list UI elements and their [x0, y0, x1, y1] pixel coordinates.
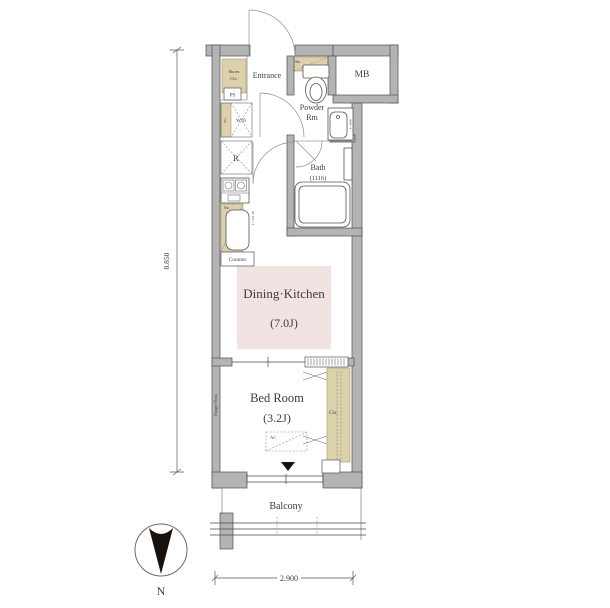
bath-shelf	[344, 148, 352, 180]
bath-size-label: (1116)	[310, 175, 327, 182]
north-compass: N	[135, 524, 187, 598]
dimension-width-label: 2.900	[280, 574, 298, 583]
floor-plan: 8.850 2.900 N Entrance Shoes Clo. PS MB …	[0, 0, 610, 608]
dining-kitchen-size-label: (7.0J)	[270, 316, 298, 330]
dining-kitchen-label: Dining·Kitchen	[243, 286, 325, 301]
balcony-railing-ticks	[277, 517, 317, 535]
wall-segment	[390, 45, 398, 103]
wall-segment	[212, 358, 232, 366]
kitchen-storage-label: Sto.	[224, 206, 230, 210]
bathtub-inner	[299, 186, 346, 223]
floor-plan-drawing: 8.850 2.900 N Entrance Shoes Clo. PS MB …	[0, 0, 610, 608]
stove-body	[221, 178, 249, 203]
wall-segment	[352, 103, 362, 488]
shoes-closet-label-1: Shoes	[229, 69, 240, 74]
wall-segment	[333, 95, 398, 103]
dining-kitchen-highlight	[237, 266, 331, 349]
wall-segment	[295, 45, 333, 56]
powder-room-label-1: Powder	[300, 103, 325, 112]
wall-segment	[212, 45, 220, 488]
entry-direction-marker	[281, 462, 295, 471]
bed-room-label: Bed Room	[250, 391, 304, 405]
hanger-hook-label: Hanger Hook	[213, 394, 218, 416]
wall-segment	[323, 472, 362, 488]
wall-step-box	[322, 460, 340, 473]
ac-label: AC	[270, 435, 276, 440]
closet-label: Clo.	[329, 411, 337, 416]
toilet-icon	[303, 65, 329, 103]
pipe-space-label: PS	[230, 94, 236, 99]
north-arrow-icon	[149, 528, 173, 574]
dimension-height-line	[170, 47, 184, 475]
bath-label: Bath	[310, 163, 325, 172]
kitchen-length-label: L=W1.50	[251, 211, 255, 225]
shoes-closet-label-2: Clo.	[230, 76, 238, 81]
main-entry-door-arc	[249, 10, 295, 56]
entrance-label: Entrance	[253, 71, 282, 80]
balcony-label: Balcony	[269, 501, 302, 512]
washer-storage-label: Sto.	[223, 117, 227, 123]
toilet-bowl-inner	[310, 84, 322, 101]
counter-label: Counter	[229, 257, 247, 263]
wall-segment	[287, 228, 362, 236]
dimension-height: 8.850	[162, 47, 184, 475]
balcony-post	[220, 513, 233, 549]
powder-room-label-2: Rm	[306, 113, 318, 122]
balcony-structure	[210, 488, 366, 540]
washer-dryer-label: W/D	[236, 119, 246, 124]
wall-segment	[212, 472, 247, 488]
kitchen-sink	[226, 210, 249, 250]
wall-segment	[287, 135, 294, 236]
refrigerator-label: R	[233, 154, 239, 163]
washbasin-faucet	[337, 116, 340, 119]
storage-shelf-label: Sto.	[295, 60, 301, 64]
balcony-side-lines	[222, 488, 361, 540]
wall-segment	[333, 45, 398, 56]
closet-top-hatch-box	[305, 357, 348, 367]
washbasin-note-label: L=600	[349, 119, 353, 129]
dimension-width: 2.900	[212, 571, 356, 585]
hall-door-arc	[260, 93, 304, 137]
toilet-tank	[303, 65, 329, 78]
dimension-height-label: 8.850	[162, 252, 171, 269]
balcony-railing	[210, 523, 366, 535]
bedroom-window	[247, 474, 323, 484]
closet-folding-door-marks	[303, 372, 327, 444]
wall-segment	[287, 56, 294, 95]
compass-north-label: N	[157, 584, 166, 598]
stove-icon	[221, 178, 249, 203]
meter-box-label: MB	[355, 70, 370, 80]
bed-room-size-label: (3.2J)	[263, 411, 291, 425]
bathtub-icon	[295, 148, 352, 227]
